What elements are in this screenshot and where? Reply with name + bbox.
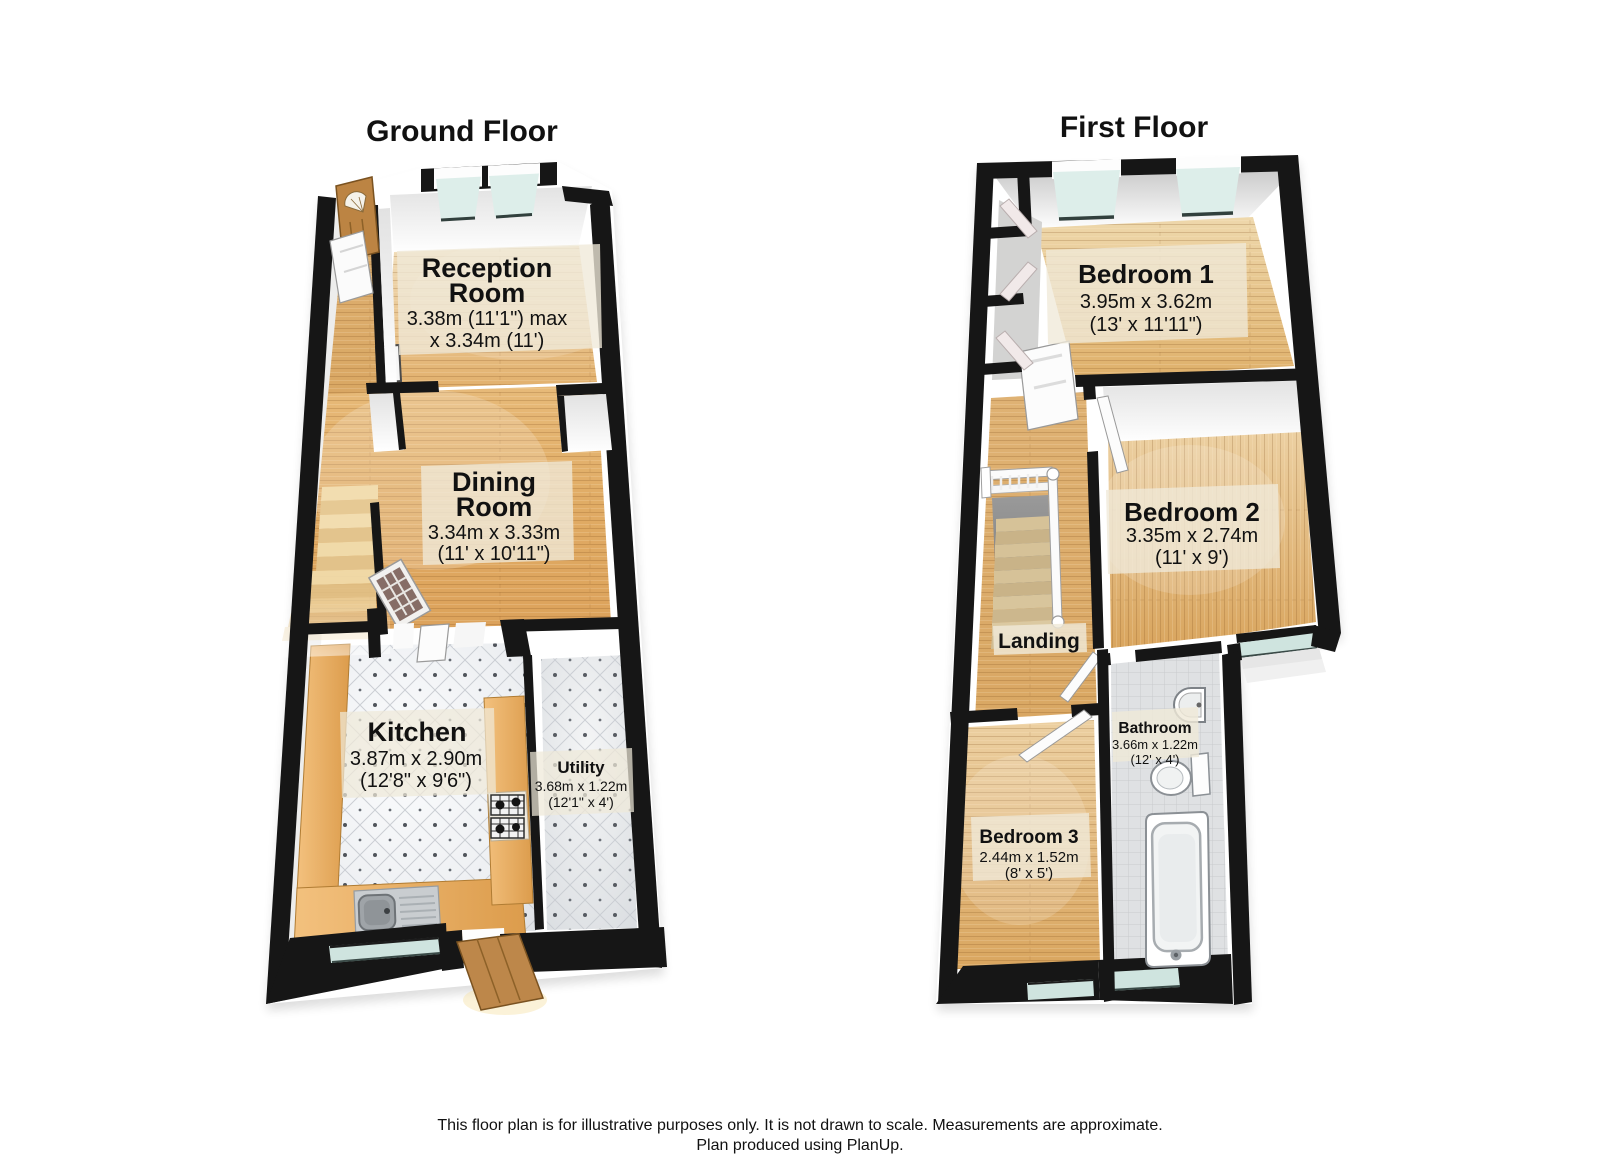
svg-text:2.44m x 1.52m: 2.44m x 1.52m — [979, 849, 1078, 866]
svg-text:(11' x 10'11"): (11' x 10'11") — [438, 543, 551, 565]
svg-text:3.35m x 2.74m: 3.35m x 2.74m — [1126, 525, 1258, 547]
svg-text:Room: Room — [449, 278, 526, 308]
svg-text:(12' x 4'): (12' x 4') — [1130, 752, 1179, 767]
svg-text:x 3.34m (11'): x 3.34m (11') — [430, 330, 545, 352]
svg-text:This floor plan is for illustr: This floor plan is for illustrative purp… — [437, 1117, 1162, 1134]
svg-text:Landing: Landing — [998, 630, 1080, 653]
svg-text:Utility: Utility — [557, 758, 605, 777]
svg-text:Plan produced using PlanUp.: Plan produced using PlanUp. — [696, 1137, 903, 1154]
svg-text:(8' x 5'): (8' x 5') — [1005, 865, 1053, 882]
svg-text:Bedroom 3: Bedroom 3 — [979, 827, 1078, 848]
svg-text:Bedroom 2: Bedroom 2 — [1124, 497, 1260, 527]
svg-text:(12'8" x 9'6"): (12'8" x 9'6") — [360, 770, 472, 792]
svg-text:3.87m x 2.90m: 3.87m x 2.90m — [350, 748, 482, 770]
svg-text:3.34m x 3.33m: 3.34m x 3.33m — [428, 522, 560, 544]
svg-text:Bathroom: Bathroom — [1118, 720, 1191, 737]
svg-text:(12'1" x 4'): (12'1" x 4') — [548, 794, 614, 810]
svg-text:3.95m x 3.62m: 3.95m x 3.62m — [1080, 291, 1212, 313]
svg-text:(11' x 9'): (11' x 9') — [1155, 547, 1229, 569]
svg-text:3.66m x 1.22m: 3.66m x 1.22m — [1112, 737, 1198, 752]
svg-text:3.68m x 1.22m: 3.68m x 1.22m — [535, 778, 628, 794]
svg-text:Bedroom 1: Bedroom 1 — [1078, 259, 1214, 289]
svg-text:First Floor: First Floor — [1060, 111, 1209, 144]
svg-text:3.38m (11'1") max: 3.38m (11'1") max — [407, 308, 568, 330]
svg-text:Ground Floor: Ground Floor — [366, 115, 558, 148]
svg-text:Kitchen: Kitchen — [367, 717, 466, 747]
svg-text:(13' x 11'11"): (13' x 11'11") — [1090, 314, 1203, 336]
svg-text:Room: Room — [456, 492, 533, 522]
